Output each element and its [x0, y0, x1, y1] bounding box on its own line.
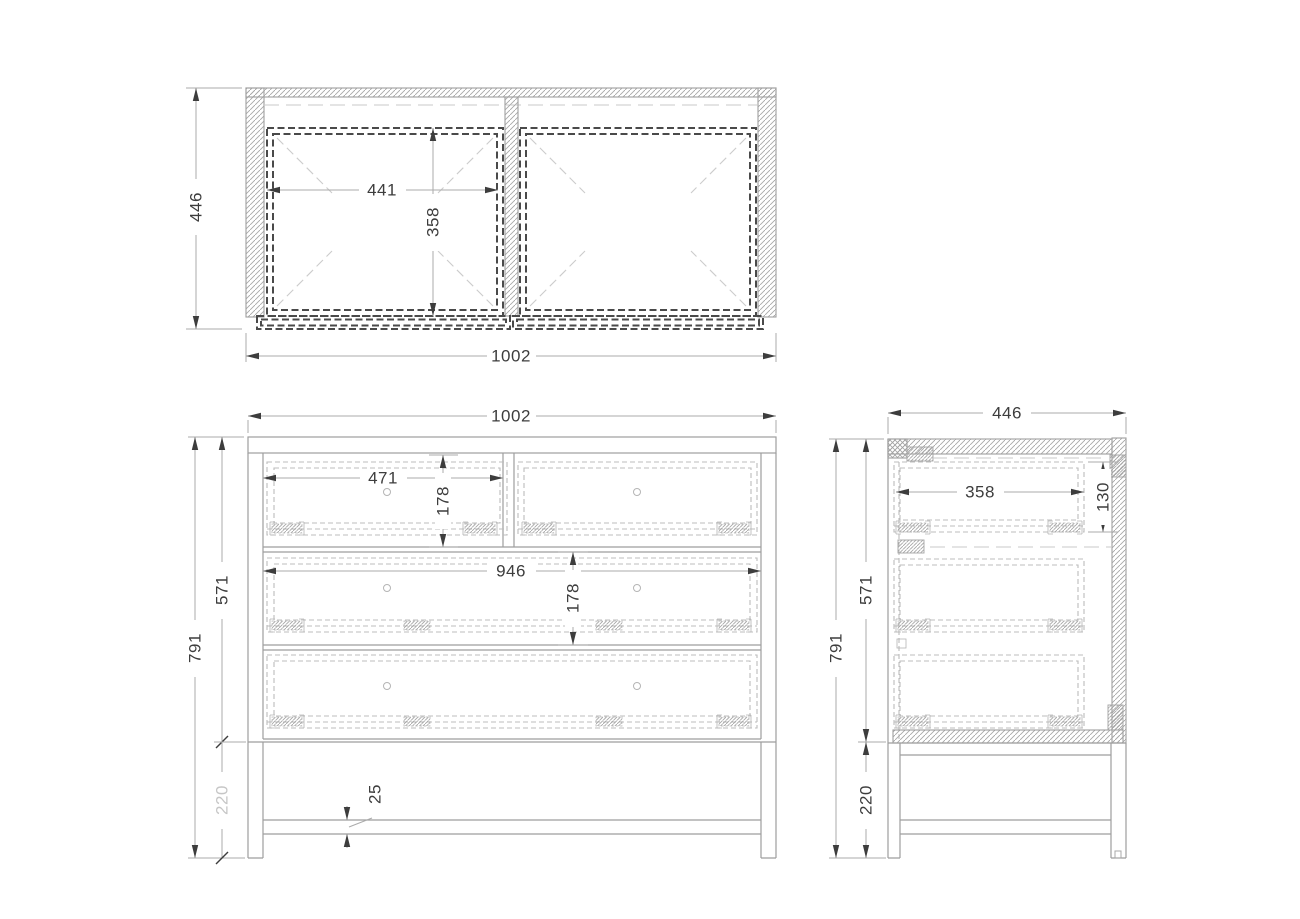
bottom-stretcher	[263, 820, 761, 834]
dim-label-wide-drawer-width: 946	[496, 562, 526, 581]
legs	[248, 742, 776, 858]
top-view-carcass	[246, 88, 776, 317]
dim-label-front-width: 1002	[491, 407, 531, 426]
dim-label-overall-depth: 446	[187, 192, 206, 222]
top-view-right-drawer-box	[520, 128, 756, 316]
corner-brace-lines	[530, 138, 746, 306]
side-view: 446 791 571 220 358	[827, 404, 1127, 859]
dim-side-drawer-depth: 358	[896, 483, 1084, 502]
side-stiles	[248, 453, 776, 742]
dim-front-width: 1002	[248, 407, 776, 434]
front-corner-block	[888, 439, 907, 458]
dim-label-side-carcass-height: 571	[857, 575, 876, 605]
bottom-stretcher	[900, 820, 1111, 834]
dim-front-middle-drawer-height: 178	[558, 552, 588, 645]
dim-label-front-height: 791	[186, 633, 205, 663]
dim-front-stretcher-thickness: 25	[344, 784, 385, 848]
corner-brace-lines	[277, 138, 493, 306]
mid-front-rail-section	[898, 540, 924, 553]
top-divider	[503, 453, 514, 547]
legs	[888, 743, 1126, 858]
dim-side-base-height: 220	[857, 742, 876, 858]
dim-label-stretcher-thickness: 25	[366, 784, 385, 804]
lower-rail-mark	[897, 639, 906, 648]
dim-label-drawer-side-height: 130	[1094, 482, 1113, 512]
top-view-left-drawer-box	[267, 128, 503, 316]
knob-hole	[634, 489, 641, 496]
dim-side-depth: 446	[888, 404, 1126, 435]
top-view: 446 1002 441 358	[186, 88, 776, 366]
dim-label-top-drawer-width: 471	[368, 469, 398, 488]
dim-top-drawer-depth: 358	[424, 128, 443, 316]
dim-label-carcass-height: 571	[213, 575, 232, 605]
knob-hole	[634, 585, 641, 592]
dim-front-base-height: 220	[213, 742, 232, 864]
dim-front-carcass-height: 571	[213, 437, 247, 748]
front-drawer-bottom	[267, 655, 757, 728]
bottom-panel-section	[893, 730, 1123, 743]
front-drawer-top-right	[518, 462, 757, 535]
dim-front-top-drawer-width: 471	[263, 469, 503, 488]
carcass-bottom	[248, 739, 776, 742]
furniture-technical-drawing: 446 1002 441 358	[0, 0, 1300, 919]
top-panel	[248, 437, 776, 453]
left-side-panel-section	[246, 88, 264, 317]
dim-label-middle-drawer-height: 178	[564, 583, 583, 613]
knob-hole	[634, 683, 641, 690]
center-divider-section	[505, 97, 518, 316]
top-back-rail-section	[1110, 455, 1126, 477]
dim-label-top-drawer-height: 178	[434, 486, 453, 516]
top-view-drawer-fronts	[257, 316, 763, 329]
dim-top-drawer-width: 441	[267, 181, 498, 200]
dim-front-top-drawer-height: 178	[429, 455, 458, 547]
back-panel-section	[1112, 438, 1126, 743]
front-carcass	[248, 437, 776, 858]
dim-label-overall-width: 1002	[491, 347, 531, 366]
dim-label-drawer-inner-width: 441	[367, 181, 397, 200]
side-drawer-middle	[894, 559, 1084, 632]
dim-label-side-depth: 446	[992, 404, 1022, 423]
knob-hole	[384, 585, 391, 592]
dim-side-carcass-height: 571	[857, 439, 887, 742]
dim-label-side-drawer-depth: 358	[965, 483, 995, 502]
back-bottom-rail-section	[1108, 705, 1123, 730]
side-drawer-bottom	[894, 655, 1084, 728]
dim-top-width: 1002	[246, 333, 776, 366]
knob-hole	[384, 489, 391, 496]
drawing-sheet: 446 1002 441 358	[0, 0, 1300, 919]
knob-hole	[384, 683, 391, 690]
front-view: 1002 791 571 220 471	[186, 407, 777, 865]
top-front-rail-section	[907, 447, 933, 461]
dim-top-depth: 446	[186, 88, 242, 329]
dim-label-side-height: 791	[827, 633, 846, 663]
dim-label-drawer-inner-depth: 358	[424, 207, 443, 237]
right-side-panel-section	[758, 88, 776, 317]
back-panel-section	[246, 88, 776, 97]
leg-notch	[1115, 851, 1121, 858]
dim-label-base-height-light: 220	[213, 785, 232, 815]
side-carcass	[888, 438, 1126, 858]
dim-label-side-base-height: 220	[857, 785, 876, 815]
